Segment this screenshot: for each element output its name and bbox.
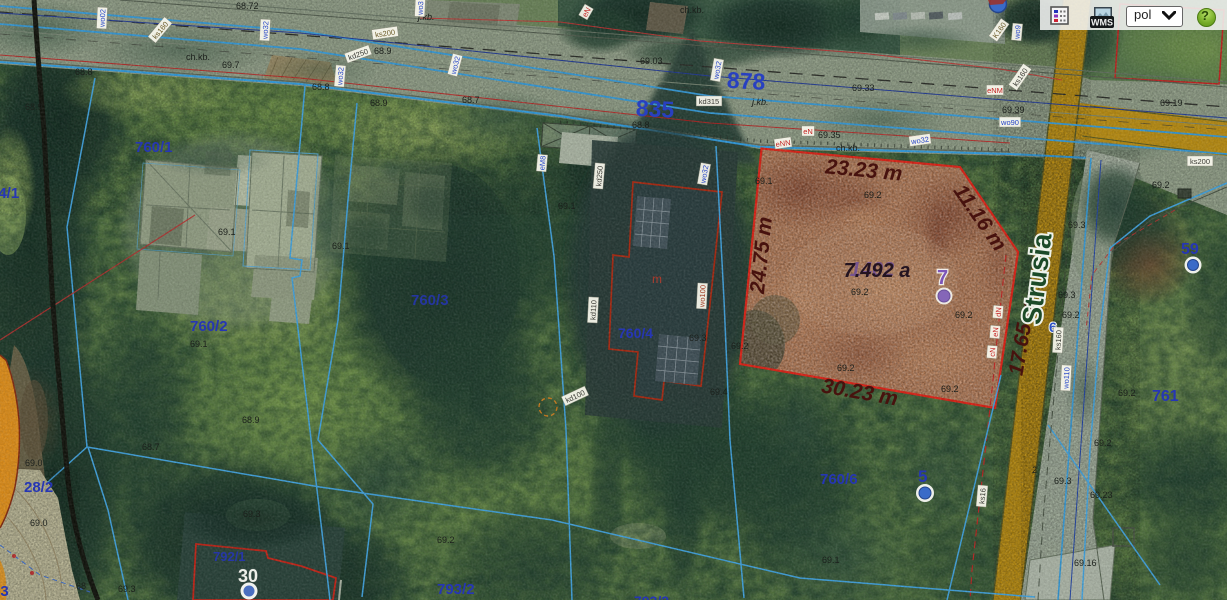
svg-text:69.2: 69.2 xyxy=(955,310,973,320)
svg-text:793/2: 793/2 xyxy=(634,593,669,600)
svg-text:69.2: 69.2 xyxy=(1062,310,1080,320)
svg-text:69.3: 69.3 xyxy=(1068,220,1086,230)
svg-text:69.2: 69.2 xyxy=(837,363,855,373)
svg-text:ch.kb.: ch.kb. xyxy=(680,5,704,15)
svg-text:93: 93 xyxy=(0,583,9,600)
svg-text:760/1: 760/1 xyxy=(135,139,173,156)
svg-text:68.72: 68.72 xyxy=(236,1,259,11)
svg-text:j.kb.: j.kb. xyxy=(751,97,769,107)
svg-text:kd250: kd250 xyxy=(594,165,605,186)
svg-text:68.8: 68.8 xyxy=(75,67,93,77)
svg-text:68.9: 68.9 xyxy=(370,98,388,108)
svg-text:760/3: 760/3 xyxy=(411,292,449,309)
svg-text:68.7: 68.7 xyxy=(142,442,160,452)
svg-text:69.1: 69.1 xyxy=(332,241,350,251)
svg-text:kd110: kd110 xyxy=(588,300,598,320)
svg-text:68.8: 68.8 xyxy=(632,120,650,130)
svg-text:69.4: 69.4 xyxy=(710,387,728,397)
svg-text:69.1: 69.1 xyxy=(218,227,236,237)
svg-text:69.1: 69.1 xyxy=(190,339,208,349)
svg-text:69.0: 69.0 xyxy=(30,518,48,528)
svg-text:59: 59 xyxy=(1181,241,1199,258)
svg-text:69.33: 69.33 xyxy=(852,83,875,93)
svg-text:ks200: ks200 xyxy=(1190,157,1210,166)
svg-text:wo02: wo02 xyxy=(97,9,107,28)
svg-text:ch.kb.: ch.kb. xyxy=(836,143,860,153)
svg-text:wo32: wo32 xyxy=(335,67,346,87)
svg-text:69.1: 69.1 xyxy=(558,201,576,211)
svg-text:68: 68 xyxy=(76,581,86,591)
svg-text:cN: cN xyxy=(988,347,998,357)
svg-text:7.492 a: 7.492 a xyxy=(844,260,911,282)
svg-text:28/2: 28/2 xyxy=(24,479,53,496)
svg-text:69.0: 69.0 xyxy=(25,458,43,468)
svg-text:ks160: ks160 xyxy=(1053,330,1063,350)
svg-text:69.39: 69.39 xyxy=(1002,105,1025,115)
svg-text:69.1: 69.1 xyxy=(822,555,840,565)
svg-text:kd315: kd315 xyxy=(699,97,719,106)
svg-text:68.9: 68.9 xyxy=(25,102,43,112)
svg-text:69.2: 69.2 xyxy=(1152,180,1170,190)
svg-text:760/4: 760/4 xyxy=(618,325,653,341)
svg-text:5: 5 xyxy=(918,467,927,486)
svg-text:69.3: 69.3 xyxy=(1058,290,1076,300)
svg-text:2: 2 xyxy=(1032,465,1037,475)
svg-text:760/6: 760/6 xyxy=(820,471,858,488)
svg-text:69.03: 69.03 xyxy=(640,56,663,66)
svg-text:69.3: 69.3 xyxy=(243,509,261,519)
svg-text:dN: dN xyxy=(994,307,1004,317)
svg-text:69.2: 69.2 xyxy=(851,287,869,297)
svg-text:69.1: 69.1 xyxy=(755,176,773,186)
svg-text:793/2: 793/2 xyxy=(437,581,475,598)
svg-text:69.3: 69.3 xyxy=(689,333,707,343)
svg-text:68.9: 68.9 xyxy=(242,415,260,425)
svg-text:68.8: 68.8 xyxy=(312,82,330,92)
svg-text:69.2: 69.2 xyxy=(1094,438,1112,448)
svg-text:69.2: 69.2 xyxy=(864,190,882,200)
svg-text:69.19: 69.19 xyxy=(1160,98,1183,108)
svg-text:68.7: 68.7 xyxy=(462,95,480,105)
svg-text:69.3: 69.3 xyxy=(118,584,136,594)
svg-text:wo9: wo9 xyxy=(1012,25,1022,40)
svg-text:69.16: 69.16 xyxy=(1074,558,1097,568)
svg-text:eM8: eM8 xyxy=(537,155,547,170)
svg-text:69.2: 69.2 xyxy=(731,341,749,351)
svg-text:69.7: 69.7 xyxy=(222,60,240,70)
svg-text:eNM: eNM xyxy=(987,86,1003,95)
svg-text:69.3: 69.3 xyxy=(1054,476,1072,486)
svg-text:69.35: 69.35 xyxy=(818,130,841,140)
svg-text:760/2: 760/2 xyxy=(190,318,228,335)
svg-text:eN: eN xyxy=(803,127,813,136)
svg-text:69.2: 69.2 xyxy=(1118,388,1136,398)
svg-text:wo3: wo3 xyxy=(416,1,426,16)
svg-text:wo32: wo32 xyxy=(260,21,270,40)
svg-text:ch.kb.: ch.kb. xyxy=(186,52,210,62)
svg-text:eN: eN xyxy=(991,327,1001,337)
svg-text:69.2: 69.2 xyxy=(941,384,959,394)
svg-text:69.23: 69.23 xyxy=(1090,490,1113,500)
svg-text:wo100: wo100 xyxy=(697,285,707,309)
svg-text:WMS: WMS xyxy=(1091,18,1113,28)
svg-text:ks16: ks16 xyxy=(977,488,987,505)
svg-text:792/1: 792/1 xyxy=(213,549,246,564)
svg-text:761: 761 xyxy=(1152,388,1179,405)
svg-text:835: 835 xyxy=(635,95,675,123)
svg-text:878: 878 xyxy=(726,67,766,95)
svg-text:69.2: 69.2 xyxy=(437,535,455,545)
svg-text:7: 7 xyxy=(937,267,948,289)
svg-text:74/1: 74/1 xyxy=(0,185,19,202)
svg-text:wo110: wo110 xyxy=(1061,367,1071,390)
svg-text:68.9: 68.9 xyxy=(374,46,392,56)
svg-text:wo90: wo90 xyxy=(1000,118,1019,127)
